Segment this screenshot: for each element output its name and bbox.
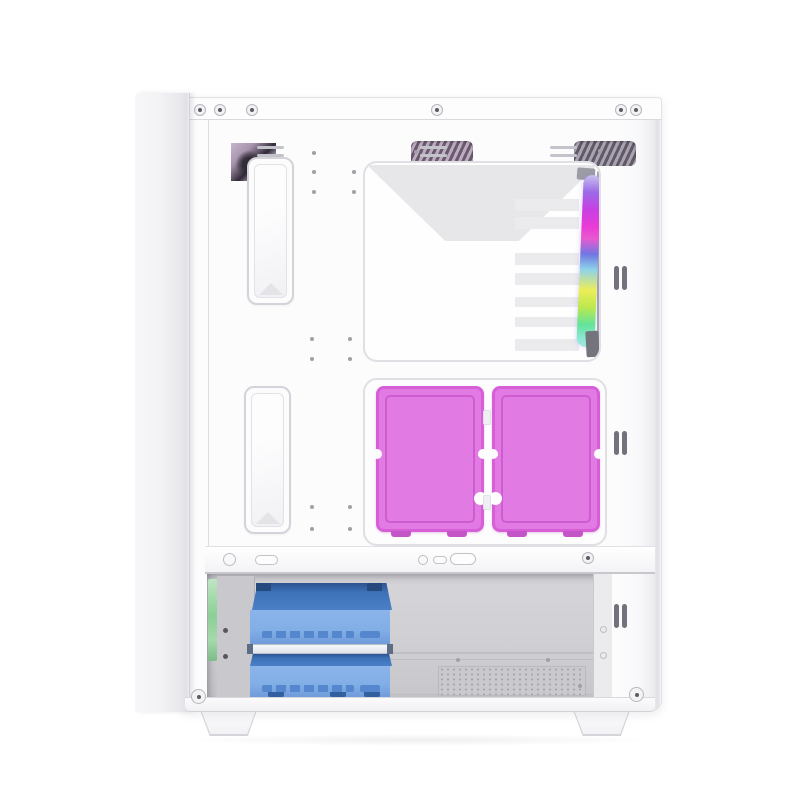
arrow-up-icon <box>259 283 283 295</box>
reflection-stripe <box>515 199 579 211</box>
mount-slot <box>255 555 278 565</box>
case-bottom-frame <box>185 697 655 712</box>
standoff-dot <box>312 190 316 194</box>
case-top-frame <box>184 100 661 120</box>
green-cable <box>208 579 217 661</box>
ssd-tray-tab <box>563 531 583 537</box>
ssd-bay-cutout <box>363 378 607 546</box>
tray-notch <box>372 449 382 459</box>
case-front-panel <box>135 93 190 712</box>
ssd-tray-tab <box>447 531 467 537</box>
screw-icon <box>630 104 642 116</box>
thumbscrew-icon <box>191 689 206 704</box>
standoff-dot <box>310 337 314 341</box>
tray-link <box>483 495 491 510</box>
mount-slot <box>433 556 447 564</box>
hdd-rail <box>247 644 393 654</box>
psu-compartment <box>207 574 612 697</box>
cable-tie-slot-pair <box>614 266 630 290</box>
standoff-dot <box>312 151 316 155</box>
tray-notch <box>488 449 498 459</box>
cable-tie-bracket <box>550 146 577 157</box>
hdd-tray-corner-tab <box>367 583 382 591</box>
screw-icon <box>546 658 550 662</box>
cable-tie-slot-pair <box>614 431 630 455</box>
cable-cover-face <box>254 164 287 298</box>
cable-cover-lower <box>244 386 291 534</box>
screw-icon <box>456 658 460 662</box>
screw-hole-icon <box>600 652 607 659</box>
standoff-dot <box>352 190 356 194</box>
reflection-stripe <box>515 273 579 285</box>
motherboard-cutout <box>363 161 601 362</box>
reflection-stripe <box>515 217 579 229</box>
tray-link <box>483 410 491 425</box>
slot-icon <box>622 604 627 628</box>
hdd-rail-end <box>387 644 393 654</box>
hdd-rail-end <box>247 644 253 654</box>
psu-vent-grid <box>438 666 586 696</box>
standoff-dot <box>310 357 314 361</box>
rear-frame-strip <box>593 574 612 697</box>
screw-icon <box>214 104 226 116</box>
slot-icon <box>622 266 627 290</box>
cable-cover-upper <box>247 157 294 305</box>
reflection-stripe <box>515 253 579 265</box>
tray-notch <box>594 449 604 459</box>
tray-notch <box>478 449 488 459</box>
screw-icon <box>431 104 443 116</box>
screw-icon <box>246 104 258 116</box>
mount-slot <box>450 553 476 565</box>
ssd-tray-tab <box>507 531 527 537</box>
screw-icon <box>615 104 627 116</box>
screw-icon <box>582 552 594 564</box>
screw-icon <box>194 104 206 116</box>
screw-hole-icon <box>418 555 428 565</box>
cable-tie-bracket <box>420 146 447 157</box>
standoff-dot <box>310 527 314 531</box>
foot-face <box>201 710 256 734</box>
cable-cover-face <box>251 393 284 527</box>
slot-icon <box>614 431 619 455</box>
ssd-tray-right <box>492 386 600 532</box>
standoff-dot <box>348 337 352 341</box>
thumbscrew-icon <box>629 687 644 702</box>
standoff-dot <box>598 149 602 153</box>
fan-clip <box>585 331 599 358</box>
cable-tie-bracket <box>257 146 284 157</box>
standoff-dot <box>352 170 356 174</box>
screw-hole-icon <box>600 626 607 633</box>
hdd-tray-vents <box>262 685 354 692</box>
reflection-stripe <box>515 297 579 307</box>
standoff-dot <box>348 527 352 531</box>
case-right-wall <box>611 120 661 712</box>
case-foot-left <box>200 710 257 736</box>
hdd-tray-front <box>250 666 390 697</box>
standoff-dot <box>414 150 418 154</box>
ssd-tray-tab <box>391 531 411 537</box>
slot-icon <box>614 604 619 628</box>
foot-face <box>574 710 629 734</box>
hdd-tray-front <box>250 610 390 644</box>
ssd-tray-frame <box>501 395 591 523</box>
hdd-tray-top-surface <box>250 654 392 666</box>
ssd-tray-frame <box>385 395 475 523</box>
hdd-tray-vents <box>262 631 354 638</box>
screw-icon <box>578 684 582 688</box>
hdd-tray-corner-tab <box>256 583 271 591</box>
product-photo-pc-case <box>0 0 800 800</box>
hdd-tray-vent <box>360 685 380 692</box>
standoff-dot <box>348 357 352 361</box>
screw-icon <box>223 628 228 633</box>
reflection-stripe <box>515 339 579 351</box>
reflection-stripe <box>515 317 579 327</box>
cable-tie-slot-pair <box>614 604 630 628</box>
standoff-dot <box>348 505 352 509</box>
screw-icon <box>223 654 228 659</box>
case-foot-right <box>573 710 630 736</box>
standoff-dot <box>312 170 316 174</box>
standoff-dot <box>310 505 314 509</box>
ssd-tray-left <box>376 386 484 532</box>
psu-shroud-edge <box>205 546 655 574</box>
slot-icon <box>622 431 627 455</box>
arrow-up-icon <box>256 512 280 524</box>
hdd-tray-vent <box>360 631 380 638</box>
screw-hole-icon <box>223 553 236 566</box>
slot-icon <box>614 266 619 290</box>
